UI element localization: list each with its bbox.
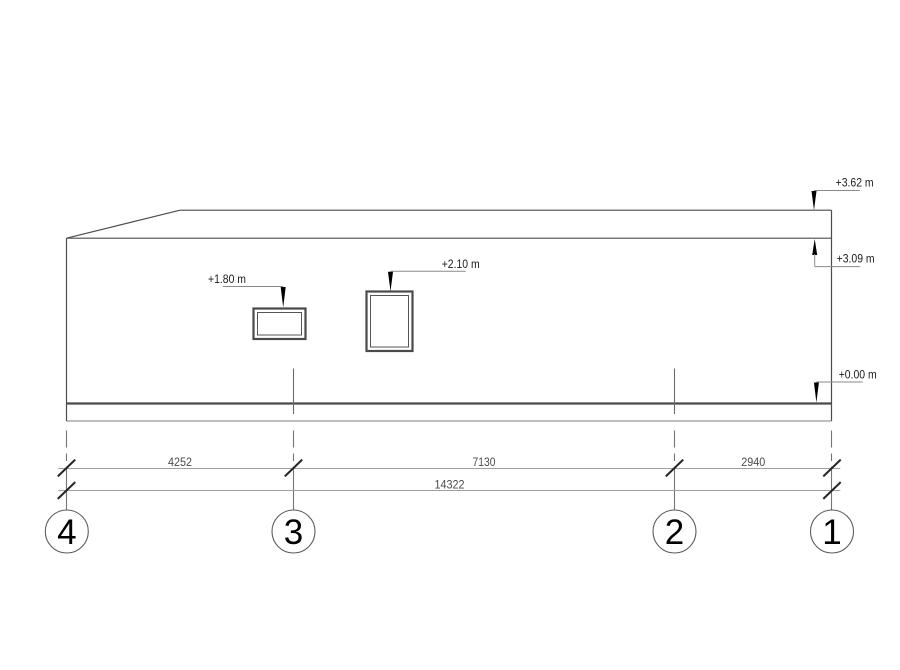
svg-text:3: 3 (284, 513, 303, 552)
svg-text:+2.10 m: +2.10 m (442, 257, 480, 271)
svg-text:14322: 14322 (435, 479, 465, 491)
svg-text:2940: 2940 (741, 457, 765, 469)
svg-text:+3.09 m: +3.09 m (837, 252, 875, 266)
svg-text:4252: 4252 (168, 457, 192, 469)
svg-text:4: 4 (57, 513, 76, 552)
svg-text:+0.00 m: +0.00 m (839, 368, 877, 382)
svg-text:2: 2 (665, 513, 684, 552)
svg-text:1: 1 (822, 513, 841, 552)
svg-text:+3.62 m: +3.62 m (836, 176, 874, 190)
svg-text:+1.80 m: +1.80 m (208, 272, 246, 286)
svg-text:7130: 7130 (473, 457, 496, 469)
